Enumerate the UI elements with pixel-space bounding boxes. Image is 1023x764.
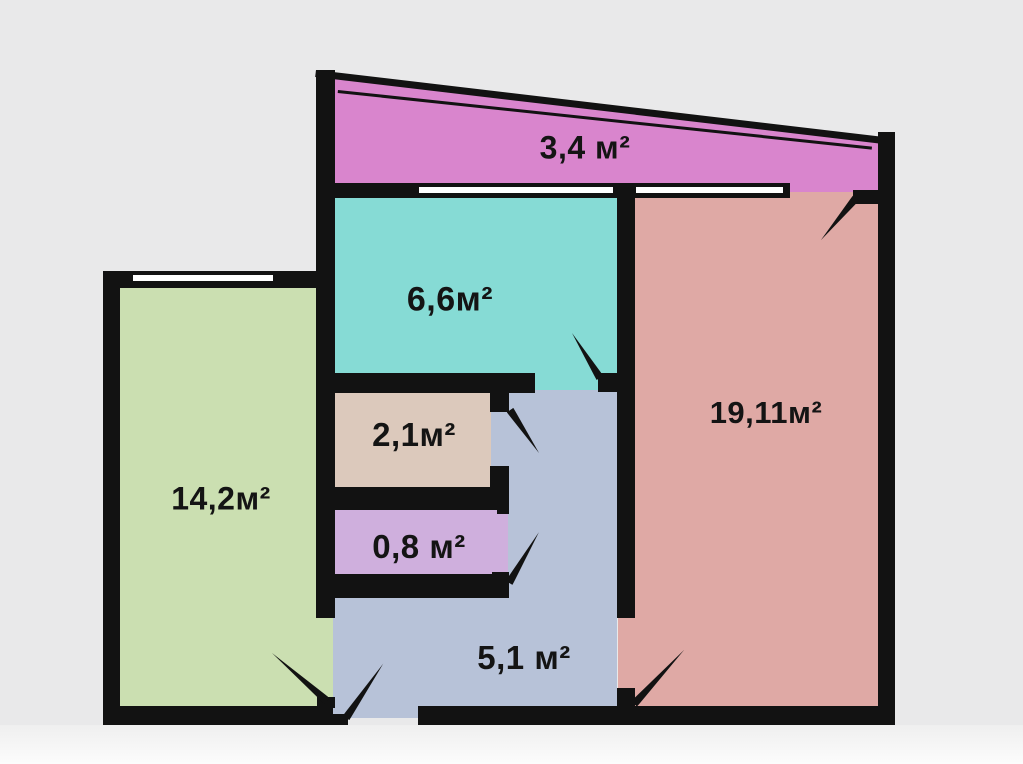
wall-bottom-outer bbox=[418, 706, 895, 725]
window-living-room bbox=[636, 187, 783, 193]
floor-plan: 3,4 м² 6,6м² 19,11м² 14,2м² 2,1м² 0,8 м²… bbox=[0, 0, 1023, 764]
room-label-wc: 0,8 м² bbox=[372, 528, 465, 566]
wall-bedroom-bottom bbox=[103, 706, 333, 725]
wall-storage-wc-divider bbox=[316, 487, 509, 510]
room-living-room bbox=[618, 187, 878, 707]
wall-kitchen-living-divider bbox=[617, 183, 635, 618]
wall-storage-wc-divider-ext bbox=[497, 487, 509, 514]
window-kitchen bbox=[419, 187, 613, 193]
room-label-storage: 2,1м² bbox=[372, 416, 456, 454]
background-bottom-band bbox=[0, 725, 1023, 764]
wall-left-outer bbox=[103, 271, 120, 725]
wall-kitchen-bottom bbox=[316, 373, 535, 393]
room-label-balcony: 3,4 м² bbox=[540, 130, 631, 167]
wall-right-outer bbox=[878, 132, 895, 725]
wall-middle-vertical bbox=[316, 70, 335, 618]
window-bedroom bbox=[133, 275, 273, 281]
wall-wc-bottom bbox=[316, 574, 509, 598]
room-label-bedroom: 14,2м² bbox=[171, 481, 271, 518]
room-label-living-room: 19,11м² bbox=[710, 395, 823, 431]
room-label-kitchen: 6,6м² bbox=[407, 281, 493, 320]
room-hallway-lower bbox=[333, 598, 491, 707]
wall-storage-door-jamb-top bbox=[490, 393, 509, 412]
room-label-hallway: 5,1 м² bbox=[477, 639, 570, 677]
